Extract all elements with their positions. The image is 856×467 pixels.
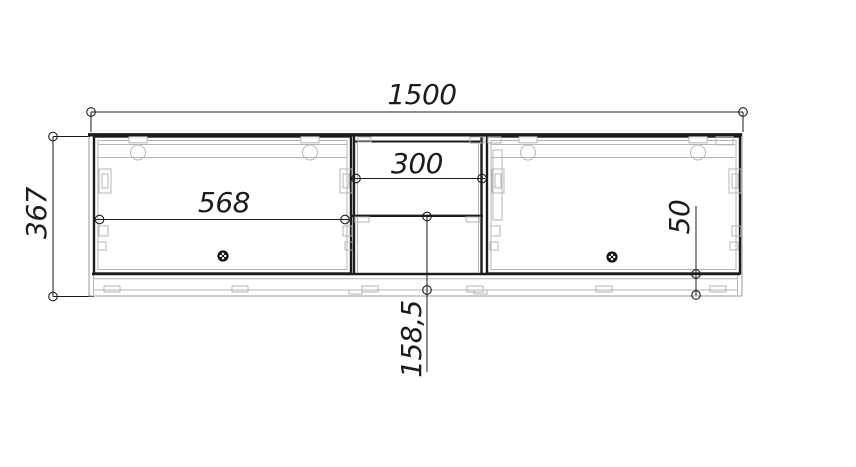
door-knob-icon (217, 250, 228, 261)
shelf-support (466, 217, 480, 222)
center-niche: 300 158,5 (352, 137, 487, 378)
bottom-bracket (349, 290, 362, 294)
bottom-bracket (362, 286, 378, 292)
dim-overall-height: 367 (20, 132, 94, 301)
dim-overall-width-label: 1500 (387, 78, 456, 111)
dim-overall-height-label: 367 (20, 186, 53, 239)
bottom-bracket (232, 286, 248, 292)
dim-center-width-label: 300 (391, 147, 443, 180)
dim-overall-width: 1500 (87, 78, 748, 132)
bottom-bracket (104, 286, 120, 292)
door-knob-icon (606, 251, 617, 262)
bottom-rail (94, 279, 737, 294)
bottom-bracket (710, 286, 726, 292)
dim-left-door-width-label: 568 (198, 186, 250, 219)
bottom-bracket (467, 286, 483, 292)
dim-center-width: 300 (352, 147, 487, 183)
technical-drawing: 1500 367 (0, 0, 856, 467)
left-door: 568 (94, 137, 353, 274)
dim-bottom-offset-label: 50 (663, 200, 696, 235)
bottom-bracket (596, 286, 612, 292)
drawing-canvas: 1500 367 (0, 0, 856, 467)
dim-shelf-to-bottom-label: 158,5 (395, 300, 428, 378)
dim-shelf-to-bottom: 158,5 (395, 212, 431, 378)
